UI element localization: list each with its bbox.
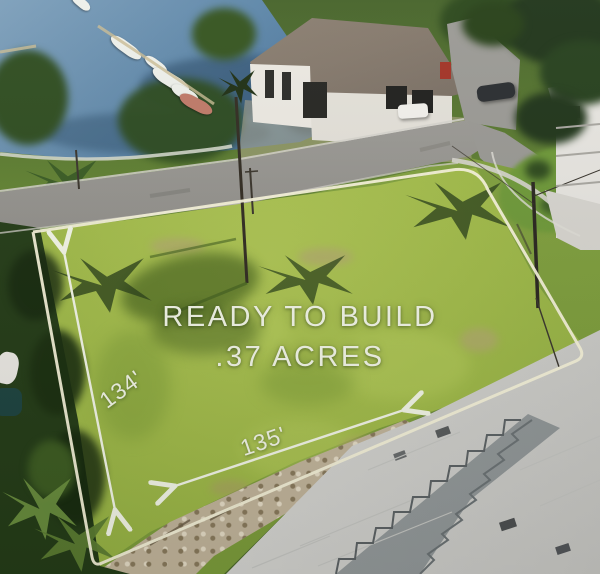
aerial-lot-photo: READY TO BUILD .37 ACRES 134' 135' [0,0,600,574]
lot-annotation-overlay [0,0,600,574]
subheadline: .37 ACRES [215,341,384,374]
headline: READY TO BUILD [162,301,437,334]
dimension-line-depth [64,252,115,510]
